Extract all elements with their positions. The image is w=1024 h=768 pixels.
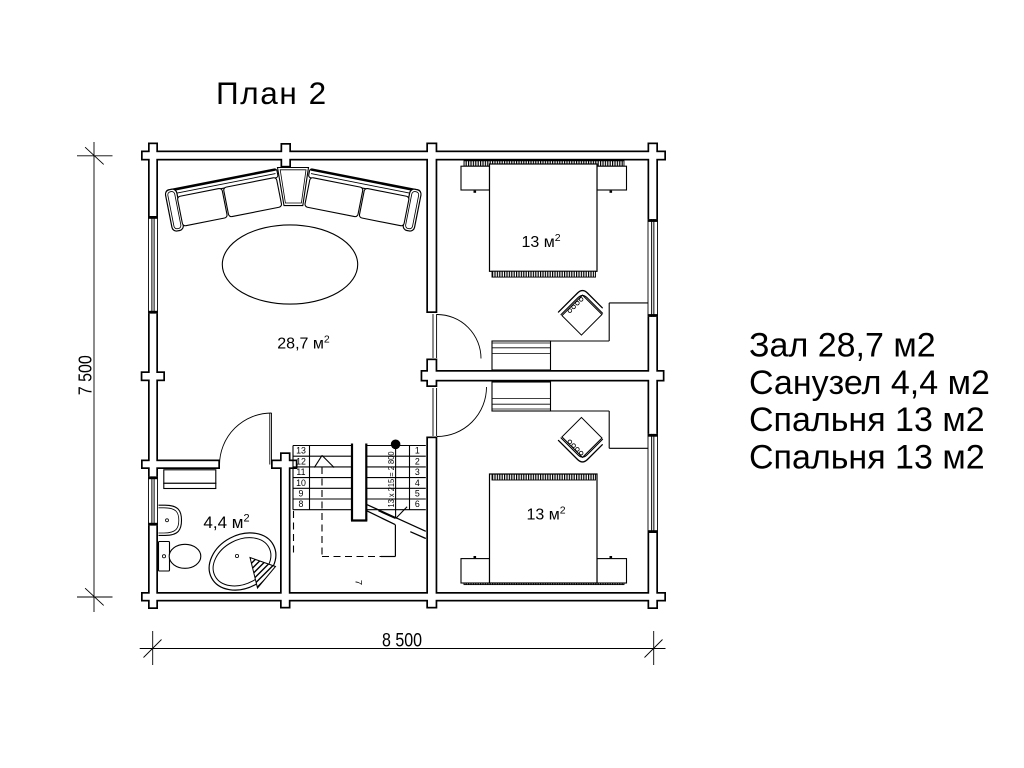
svg-text:2: 2 — [415, 456, 420, 466]
svg-text:8: 8 — [299, 499, 304, 509]
svg-text:9: 9 — [299, 489, 304, 499]
svg-text:28,7 м2: 28,7 м2 — [277, 334, 330, 353]
svg-text:Спальня 13 м2: Спальня 13 м2 — [749, 438, 985, 476]
svg-text:12: 12 — [296, 456, 306, 466]
svg-text:4: 4 — [415, 478, 420, 488]
svg-text:4,4 м2: 4,4 м2 — [203, 513, 249, 533]
svg-text:3: 3 — [415, 467, 420, 477]
svg-text:8 500: 8 500 — [382, 630, 422, 651]
svg-text:10: 10 — [296, 478, 306, 488]
svg-text:Санузел 4,4 м2: Санузел 4,4 м2 — [749, 364, 990, 402]
svg-text:Зал 28,7 м2: Зал 28,7 м2 — [749, 327, 936, 365]
svg-text:13 x 215 = 2 800: 13 x 215 = 2 800 — [386, 451, 396, 507]
svg-text:11: 11 — [296, 467, 305, 477]
svg-text:1: 1 — [415, 446, 420, 456]
svg-text:Спальня 13 м2: Спальня 13 м2 — [749, 401, 985, 439]
svg-text:7 500: 7 500 — [76, 355, 96, 395]
svg-text:7: 7 — [354, 580, 364, 585]
svg-text:5: 5 — [415, 489, 420, 499]
svg-text:6: 6 — [415, 499, 420, 509]
svg-text:План 2: План 2 — [216, 75, 328, 111]
svg-text:13: 13 — [296, 446, 306, 456]
